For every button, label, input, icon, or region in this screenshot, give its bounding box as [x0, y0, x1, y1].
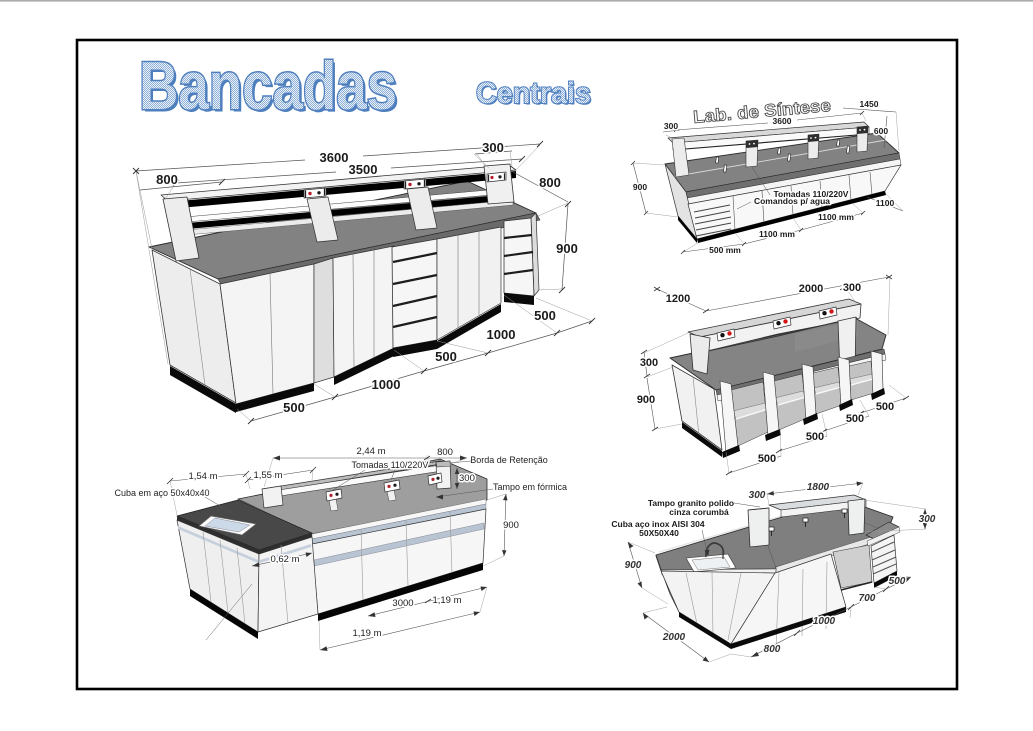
svg-text:Tomadas 110/220V: Tomadas 110/220V — [352, 460, 429, 470]
svg-text:500: 500 — [758, 453, 776, 465]
svg-text:50X50X40: 50X50X40 — [639, 528, 679, 538]
svg-text:Centrais: Centrais — [476, 77, 591, 110]
svg-text:500: 500 — [889, 576, 906, 587]
svg-text:600: 600 — [874, 126, 888, 136]
svg-text:700: 700 — [859, 593, 876, 604]
svg-text:300: 300 — [664, 121, 678, 131]
svg-text:900: 900 — [556, 241, 578, 256]
svg-text:800: 800 — [437, 447, 453, 458]
svg-text:500: 500 — [534, 308, 556, 323]
svg-text:300: 300 — [640, 357, 658, 369]
svg-text:500: 500 — [846, 413, 864, 425]
svg-text:300: 300 — [919, 514, 936, 525]
svg-text:Tampo em fórmica: Tampo em fórmica — [493, 482, 567, 492]
svg-text:3500: 3500 — [349, 162, 378, 177]
svg-text:Cuba em aço 50x40x40: Cuba em aço 50x40x40 — [114, 488, 209, 498]
svg-text:1,54 m: 1,54 m — [188, 471, 217, 482]
svg-text:500 mm: 500 mm — [709, 245, 741, 255]
svg-text:300: 300 — [459, 473, 475, 484]
svg-text:Bancadas: Bancadas — [139, 48, 397, 124]
svg-text:cinza corumbá: cinza corumbá — [669, 507, 729, 517]
svg-text:500: 500 — [806, 431, 824, 443]
svg-text:300: 300 — [749, 490, 766, 501]
svg-text:1000: 1000 — [813, 616, 836, 627]
svg-text:3600: 3600 — [320, 150, 349, 165]
svg-text:900: 900 — [503, 520, 519, 531]
svg-text:3600: 3600 — [773, 116, 792, 126]
svg-text:900: 900 — [625, 560, 642, 571]
svg-text:0,62 m: 0,62 m — [270, 554, 299, 565]
svg-text:1,19 m: 1,19 m — [352, 628, 381, 639]
svg-text:1450: 1450 — [860, 99, 879, 109]
svg-text:500: 500 — [435, 349, 457, 364]
svg-text:300: 300 — [482, 140, 504, 155]
svg-text:800: 800 — [764, 644, 781, 655]
svg-text:Comandos p/ agua: Comandos p/ agua — [754, 196, 830, 206]
svg-text:1100 mm: 1100 mm — [759, 229, 795, 239]
svg-text:Borda de Retenção: Borda de Retenção — [470, 455, 548, 465]
svg-text:500: 500 — [283, 400, 305, 415]
svg-text:500: 500 — [876, 401, 894, 413]
svg-text:1,55 m: 1,55 m — [253, 470, 282, 481]
svg-text:1200: 1200 — [666, 293, 690, 305]
svg-text:800: 800 — [156, 172, 178, 187]
svg-text:800: 800 — [539, 175, 561, 190]
svg-text:3000: 3000 — [392, 598, 413, 609]
svg-text:900: 900 — [633, 182, 647, 192]
svg-text:1100: 1100 — [876, 198, 895, 208]
svg-text:2000: 2000 — [799, 283, 823, 295]
svg-text:1800: 1800 — [807, 482, 830, 493]
svg-text:1000: 1000 — [487, 327, 516, 342]
svg-text:1000: 1000 — [372, 377, 401, 392]
svg-text:900: 900 — [637, 394, 655, 406]
svg-text:2000: 2000 — [662, 632, 686, 643]
svg-text:2,44 m: 2,44 m — [356, 446, 385, 457]
svg-text:1,19 m: 1,19 m — [432, 595, 461, 606]
svg-text:1100 mm: 1100 mm — [818, 212, 854, 222]
svg-text:300: 300 — [843, 282, 861, 294]
